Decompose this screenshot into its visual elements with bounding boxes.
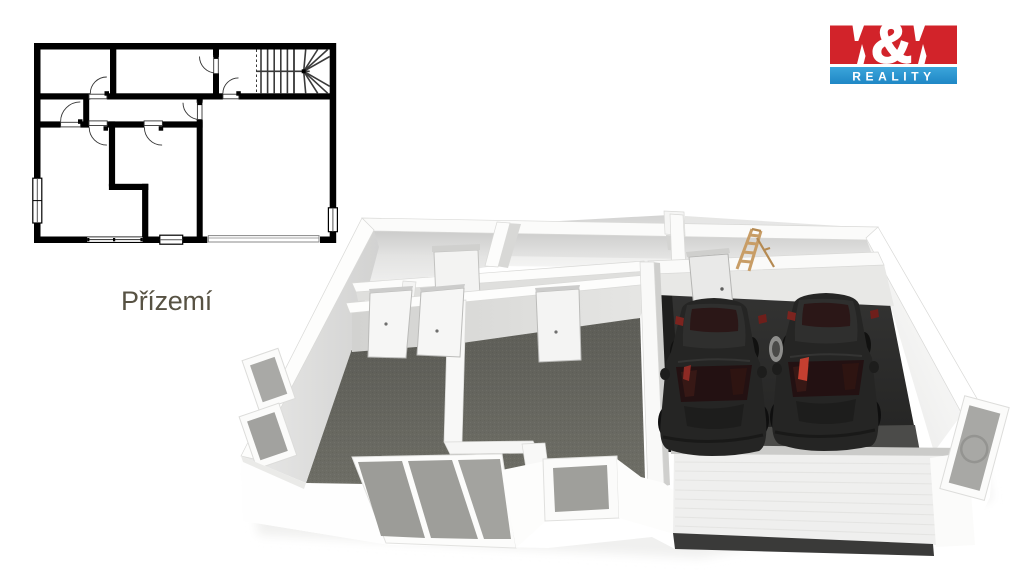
svg-text:&: & <box>871 12 912 76</box>
svg-text:REALITY: REALITY <box>852 69 936 83</box>
svg-text:Přízemí: Přízemí <box>121 286 213 316</box>
